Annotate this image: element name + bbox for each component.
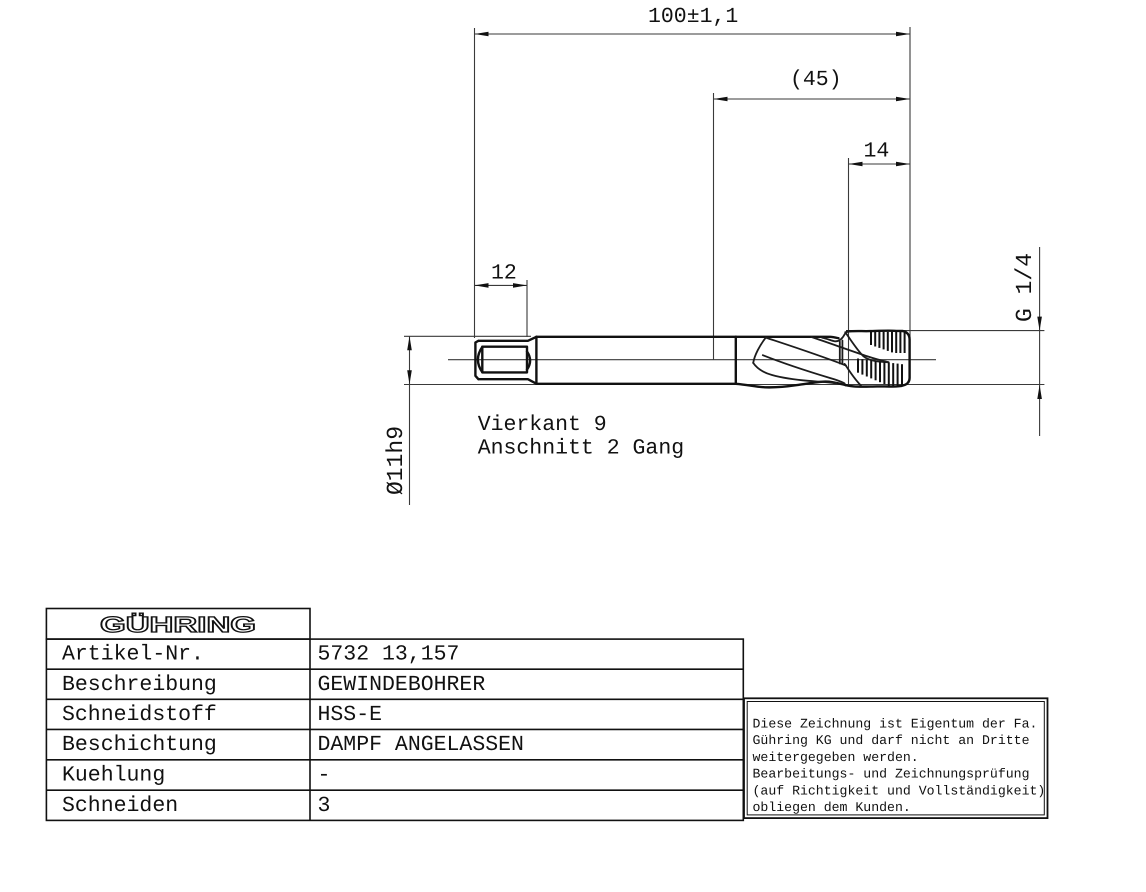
svg-text:Bearbeitungs- und Zeichnungspr: Bearbeitungs- und Zeichnungsprüfung bbox=[753, 767, 1030, 782]
svg-text:GEWINDEBOHRER: GEWINDEBOHRER bbox=[318, 673, 486, 697]
svg-text:Ø11h9: Ø11h9 bbox=[383, 426, 409, 495]
svg-text:3: 3 bbox=[318, 794, 331, 818]
svg-text:(45): (45) bbox=[790, 68, 842, 92]
svg-text:12: 12 bbox=[491, 262, 517, 286]
svg-text:Anschnitt 2 Gang: Anschnitt 2 Gang bbox=[478, 437, 684, 461]
svg-text:Schneiden: Schneiden bbox=[62, 794, 178, 818]
svg-text:weitergegeben werden.: weitergegeben werden. bbox=[753, 750, 919, 765]
svg-text:Vierkant 9: Vierkant 9 bbox=[478, 413, 607, 437]
svg-text:G 1/4: G 1/4 bbox=[1012, 253, 1038, 322]
svg-text:(auf Richtigkeit und Vollständ: (auf Richtigkeit und Vollständigkeit) bbox=[753, 783, 1046, 798]
svg-text:Beschreibung: Beschreibung bbox=[62, 673, 217, 697]
svg-text:Diese Zeichnung ist Eigentum d: Diese Zeichnung ist Eigentum der Fa. bbox=[753, 717, 1038, 732]
svg-text:Artikel-Nr.: Artikel-Nr. bbox=[62, 643, 204, 667]
svg-text:Schneidstoff: Schneidstoff bbox=[62, 703, 217, 727]
svg-text:obliegen dem Kunden.: obliegen dem Kunden. bbox=[753, 800, 911, 815]
svg-text:Gühring KG und darf nicht an D: Gühring KG und darf nicht an Dritte bbox=[753, 733, 1030, 748]
svg-text:DAMPF ANGELASSEN: DAMPF ANGELASSEN bbox=[318, 733, 524, 757]
svg-text:5732 13,157: 5732 13,157 bbox=[318, 643, 460, 667]
svg-text:HSS-E: HSS-E bbox=[318, 703, 383, 727]
svg-text:14: 14 bbox=[864, 140, 890, 164]
svg-text:GÜHRING: GÜHRING bbox=[100, 612, 256, 637]
svg-text:-: - bbox=[318, 763, 331, 787]
svg-text:Beschichtung: Beschichtung bbox=[62, 733, 217, 757]
svg-text:Kuehlung: Kuehlung bbox=[62, 763, 165, 787]
svg-text:100±1,1: 100±1,1 bbox=[648, 5, 738, 29]
